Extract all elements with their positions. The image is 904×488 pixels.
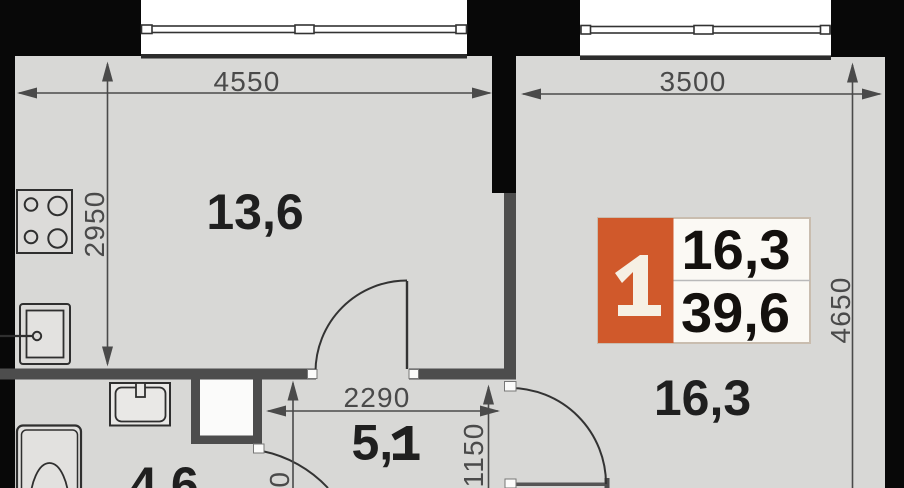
svg-text:4,6: 4,6 [129,457,199,488]
svg-text:2950: 2950 [79,190,110,257]
svg-text:650: 650 [264,471,295,488]
svg-text:5,: 5, [352,415,394,471]
svg-text:4550: 4550 [213,66,280,97]
svg-text:1150: 1150 [458,422,489,487]
svg-text:4650: 4650 [825,276,856,343]
svg-text:13,6: 13,6 [206,184,303,240]
svg-text:2290: 2290 [343,382,410,413]
svg-text:16,3: 16,3 [682,218,791,281]
svg-text:39,6: 39,6 [681,281,790,344]
svg-text:3500: 3500 [659,66,726,97]
svg-text:16,3: 16,3 [654,370,751,426]
